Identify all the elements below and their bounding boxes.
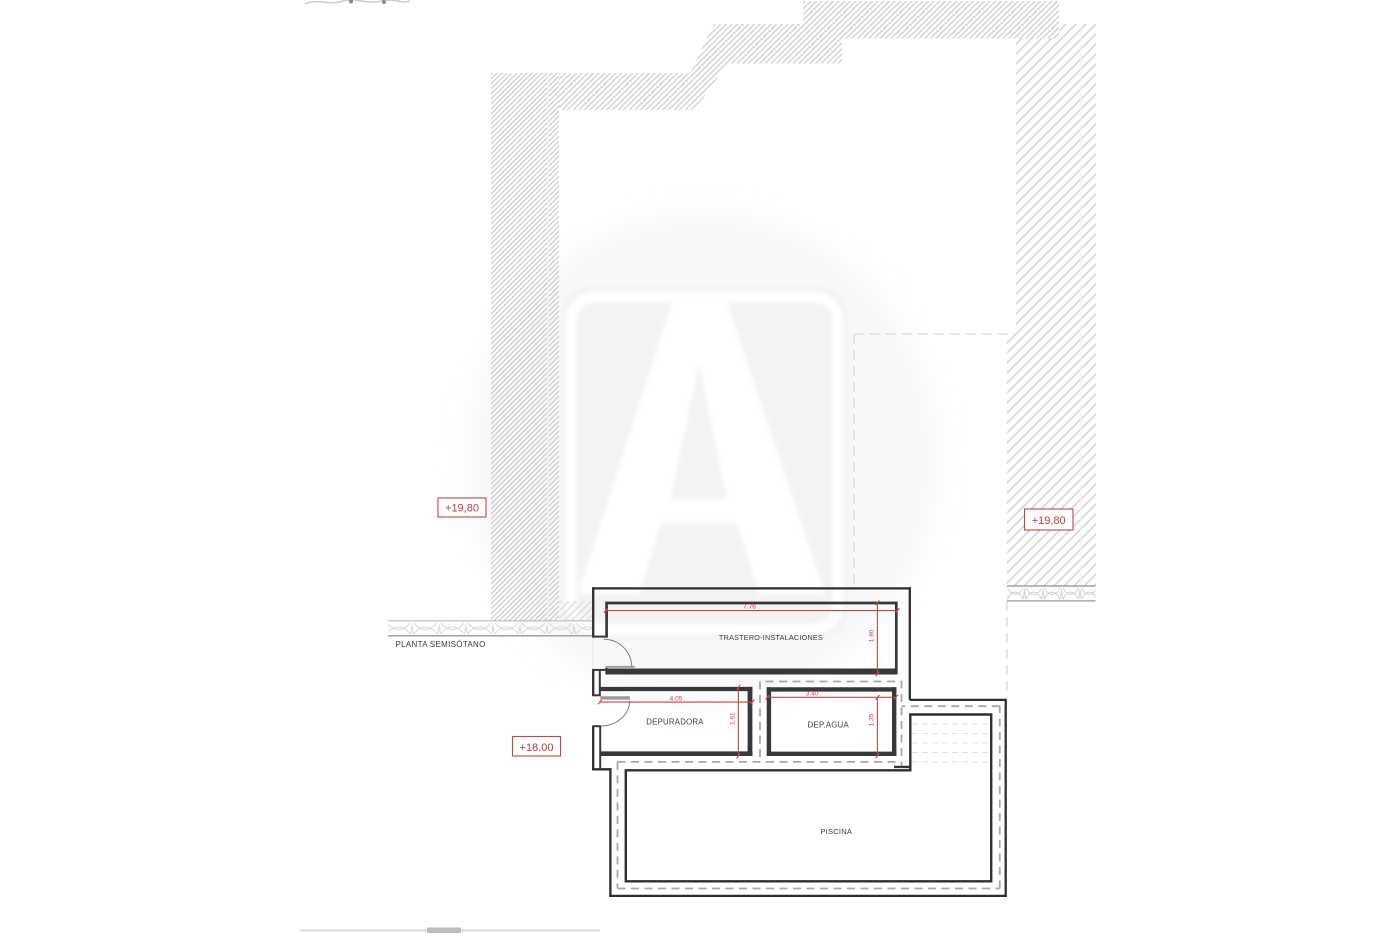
svg-text:DEP.AGUA: DEP.AGUA xyxy=(808,720,850,729)
svg-text:4.05: 4.05 xyxy=(670,695,683,702)
svg-text:TRASTERO-INSTALACIONES: TRASTERO-INSTALACIONES xyxy=(719,633,823,642)
svg-text:DEPURADORA: DEPURADORA xyxy=(646,718,704,727)
svg-text:7.76: 7.76 xyxy=(743,604,756,611)
svg-text:1.35: 1.35 xyxy=(869,713,876,726)
svg-text:+18.00: +18.00 xyxy=(520,742,554,754)
svg-text:PLANTA SEMISÓTANO: PLANTA SEMISÓTANO xyxy=(396,640,486,649)
svg-text:PISCINA: PISCINA xyxy=(820,827,853,836)
svg-text:+19,80: +19,80 xyxy=(445,503,479,515)
svg-text:1.61: 1.61 xyxy=(730,712,737,725)
svg-text:+19,80: +19,80 xyxy=(1032,515,1066,527)
svg-text:3.40: 3.40 xyxy=(806,691,819,698)
svg-text:1.90: 1.90 xyxy=(869,629,876,642)
